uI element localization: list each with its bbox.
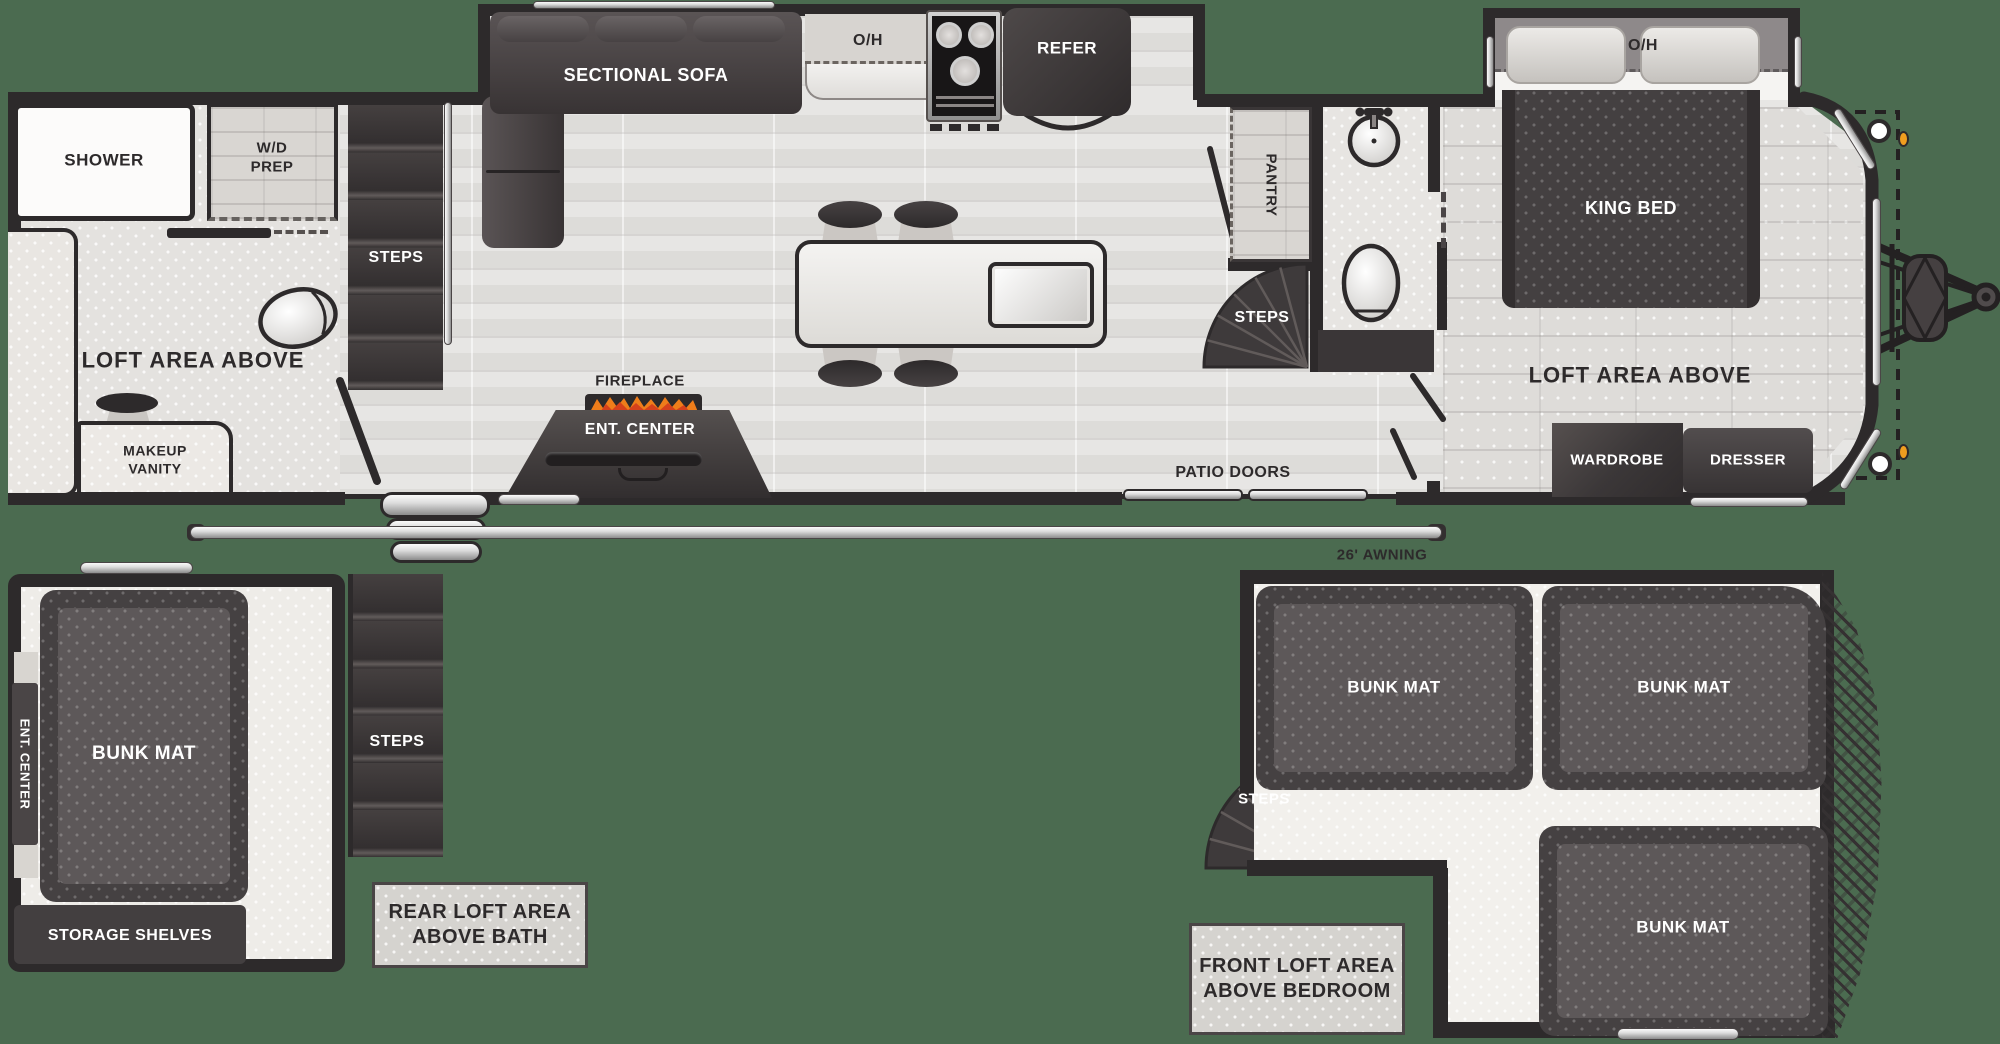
stove xyxy=(926,10,1002,122)
rear-loft-steps-label: STEPS xyxy=(370,732,425,752)
king-slide-window-left xyxy=(1486,36,1494,88)
cap-light-bottom xyxy=(1868,452,1892,476)
rear-steps-label: STEPS xyxy=(369,248,424,268)
front-loft-bottom-rail xyxy=(1617,1028,1739,1040)
wardrobe-label: WARDROBE xyxy=(1570,452,1663,471)
patio-doors-label: PATIO DOORS xyxy=(1175,463,1290,483)
rear-loft-storage-label: STORAGE SHELVES xyxy=(48,926,212,946)
rear-loft-caption: REAR LOFT AREA ABOVE BATH xyxy=(389,900,572,950)
island-stool-top-1-seat xyxy=(818,201,882,228)
king-slide-window-right xyxy=(1794,36,1802,88)
king-pillow-left xyxy=(1506,26,1626,84)
front-loft-wall-left xyxy=(1240,570,1254,798)
spiral-steps-label: STEPS xyxy=(1235,308,1290,328)
bedroom-window xyxy=(1690,497,1808,507)
entry-side-window xyxy=(498,494,580,505)
sofa-chaise-seam xyxy=(486,170,560,173)
sofa-cushion-3 xyxy=(693,16,785,42)
island-stool-bottom-2-seat xyxy=(894,360,958,387)
wd-prep-label: W/D PREP xyxy=(251,139,294,177)
rear-sink-console xyxy=(8,228,78,497)
front-loft-area-label: LOFT AREA ABOVE xyxy=(1529,361,1752,389)
rear-toilet xyxy=(254,282,341,355)
island-sink xyxy=(988,262,1094,328)
mid-bath-sink xyxy=(1350,108,1398,166)
stove-burner-1 xyxy=(936,22,962,48)
front-loft-wall-top xyxy=(1240,570,1834,584)
rear-loft-bunk-label: BUNK MAT xyxy=(92,742,196,766)
sofa-slide-roof-rail xyxy=(533,1,775,9)
front-loft-bunk-left-label: BUNK MAT xyxy=(1347,676,1440,697)
fireplace-flames xyxy=(590,396,698,412)
marker-light-top xyxy=(1898,131,1909,147)
marker-light-bottom xyxy=(1898,444,1909,460)
front-loft-bunk-lower-label: BUNK MAT xyxy=(1636,916,1729,937)
floorplan-canvas: SHOWER W/D PREP STEPS LOFT AREA ABOVE MA… xyxy=(0,0,2000,1044)
ent-center-label: ENT. CENTER xyxy=(585,420,695,440)
stove-oven-line-2 xyxy=(936,104,994,107)
dresser-label: DRESSER xyxy=(1710,452,1786,471)
entry-step-3 xyxy=(390,541,482,563)
ent-center-handle xyxy=(545,452,702,466)
makeup-vanity-stool-top xyxy=(96,393,158,413)
patio-door-panel-1 xyxy=(1123,489,1243,501)
rear-loft-wall-panel-top xyxy=(14,652,38,683)
sectional-sofa-label: SECTIONAL SOFA xyxy=(564,64,729,87)
island-stool-top-2-seat xyxy=(894,201,958,228)
front-loft-wall-cut-v xyxy=(1433,868,1448,1036)
king-oh-label: O/H xyxy=(1628,36,1658,56)
sofa-cushion-1 xyxy=(497,16,589,42)
rear-loft-roof-rail xyxy=(80,562,193,574)
cap-window-front xyxy=(1872,198,1881,386)
ent-center-arc-handle xyxy=(618,468,668,481)
patio-door-panel-2 xyxy=(1248,489,1368,501)
makeup-vanity-label: MAKEUP VANITY xyxy=(123,443,187,478)
island-stool-bottom-1-seat xyxy=(818,360,882,387)
awning-label: 26' AWNING xyxy=(1337,547,1428,566)
stove-burner-3 xyxy=(950,56,980,86)
entry-step-1 xyxy=(380,492,490,518)
sofa-cushion-2 xyxy=(595,16,687,42)
front-loft-steps-label: STEPS xyxy=(1238,791,1290,810)
cap-light-top xyxy=(1867,119,1891,143)
propane-tank xyxy=(1904,256,1946,340)
front-loft-bunk-right-label: BUNK MAT xyxy=(1637,676,1730,697)
pantry-label: PANTRY xyxy=(1263,154,1280,217)
stove-oven-line-1 xyxy=(936,96,994,99)
rear-loft-ent-center-label: ENT. CENTER xyxy=(18,719,33,810)
rear-partition-diagonal xyxy=(340,381,377,481)
front-loft-caption: FRONT LOFT AREA ABOVE BEDROOM xyxy=(1199,954,1395,1004)
king-bed-label: KING BED xyxy=(1585,197,1677,220)
king-pillow-right xyxy=(1640,26,1760,84)
bath-door-leaf xyxy=(1413,376,1443,419)
rear-loft-area-label: LOFT AREA ABOVE xyxy=(82,346,305,374)
fireplace-label: FIREPLACE xyxy=(595,373,685,392)
stove-knobs xyxy=(930,124,1000,131)
awning-rail xyxy=(190,526,1442,539)
front-loft-wall-cut-h xyxy=(1247,860,1447,876)
rear-loft-steps-column xyxy=(348,574,443,857)
kitchen-counter xyxy=(805,64,930,100)
mid-bath-toilet xyxy=(1344,246,1398,320)
rear-loft-wall-panel-bottom xyxy=(14,845,38,878)
mid-bath-vanity xyxy=(1318,330,1434,372)
refrigerator xyxy=(1003,8,1131,116)
shower-label: SHOWER xyxy=(64,149,144,170)
stove-burner-2 xyxy=(968,22,994,48)
bedroom-door-leaf xyxy=(1393,431,1414,477)
kitchen-oh-label: O/H xyxy=(853,31,883,51)
refer-label: REFER xyxy=(1037,37,1097,58)
